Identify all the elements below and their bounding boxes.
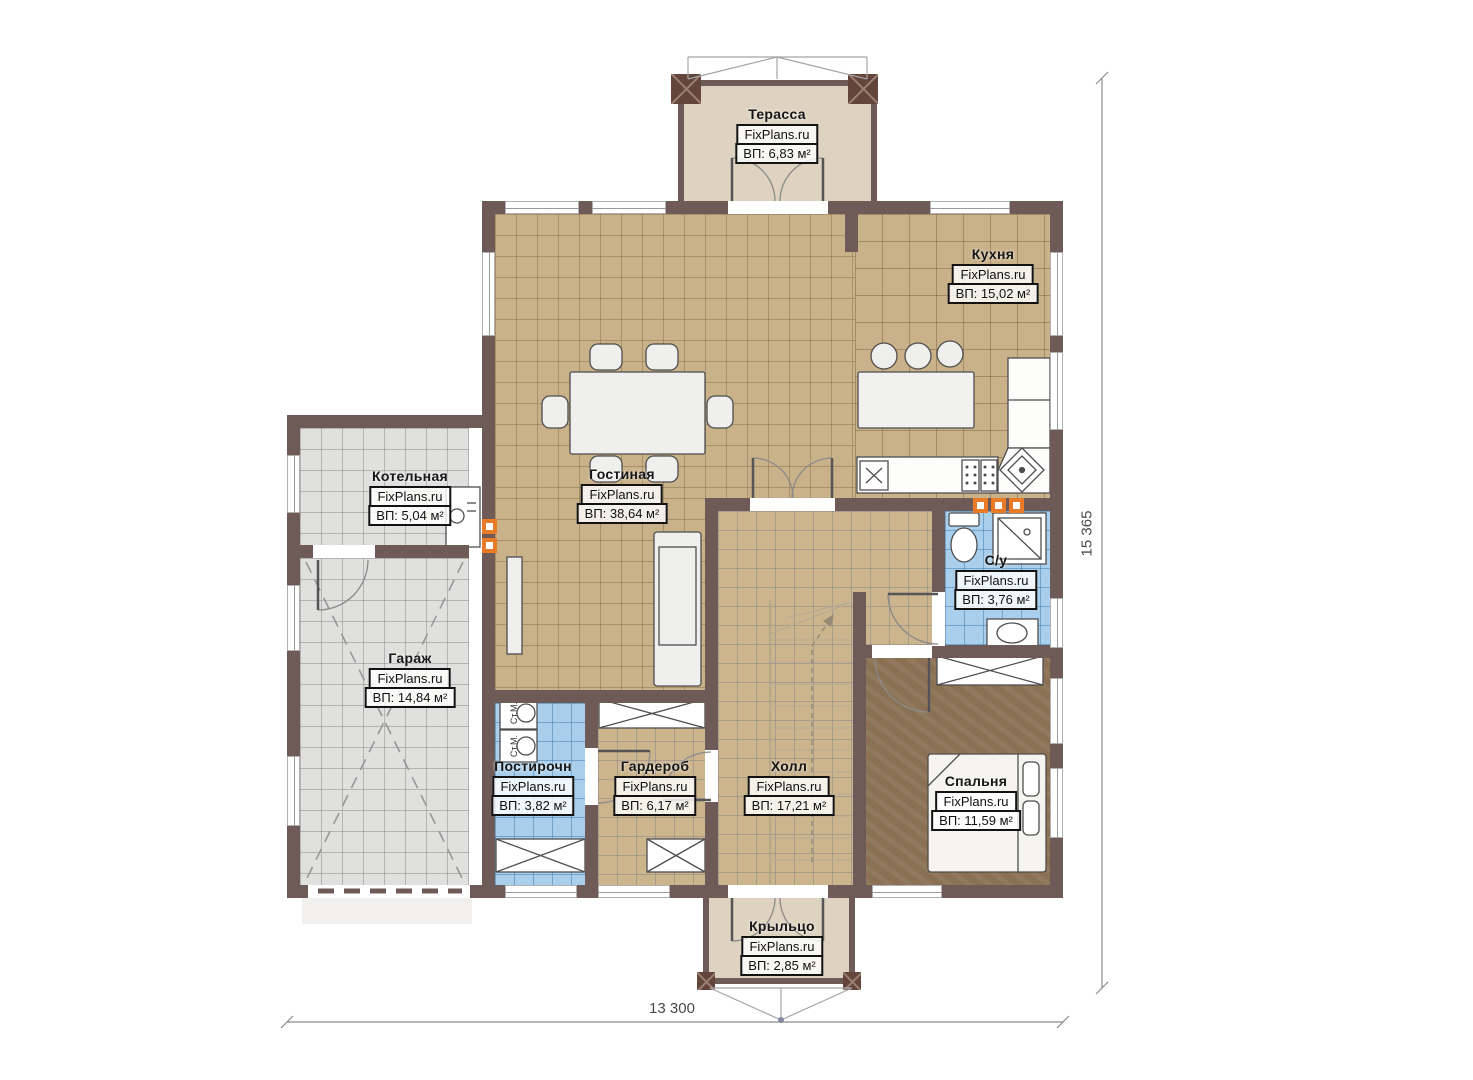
room-watermark: FixPlans.ru: [955, 570, 1037, 591]
bedroom-floor: [866, 658, 1050, 885]
room-area: ВП: 5,04 м²: [368, 505, 451, 526]
garage-floor: [300, 558, 469, 885]
washing-machine-label: Ст.М.: [509, 697, 519, 729]
porch-pillar: [843, 972, 861, 990]
room-name: Гостиная: [589, 466, 655, 482]
room-label-boiler: Котельная FixPlans.ru ВП: 5,04 м²: [368, 468, 451, 526]
window: [1050, 598, 1063, 648]
window: [1050, 252, 1063, 336]
wardrobe-door-opening: [705, 750, 718, 802]
room-watermark: FixPlans.ru: [614, 776, 696, 797]
floor-plan-canvas: Терасса FixPlans.ru ВП: 6,83 м² Кухня Fi…: [0, 0, 1473, 1080]
room-watermark: FixPlans.ru: [492, 776, 574, 797]
room-watermark: FixPlans.ru: [952, 264, 1034, 285]
window: [287, 585, 300, 651]
room-area: ВП: 3,76 м²: [954, 589, 1037, 610]
terrace-pillar: [671, 74, 701, 104]
dimension-width: 13 300: [622, 1000, 722, 1017]
garage-gate-opening: [308, 885, 470, 898]
room-label-terrace: Терасса FixPlans.ru ВП: 6,83 м²: [735, 106, 818, 164]
room-label-living: Гостиная FixPlans.ru ВП: 38,64 м²: [577, 466, 668, 524]
radiator: [991, 498, 1006, 513]
radiator: [482, 519, 497, 534]
room-name: С/у: [985, 552, 1008, 568]
room-label-porch: Крыльцо FixPlans.ru ВП: 2,85 м²: [740, 918, 823, 976]
room-name: Кухня: [972, 246, 1014, 262]
terrace-door-opening: [728, 201, 828, 214]
room-name: Котельная: [372, 468, 448, 484]
wall-stairs-bedroom: [853, 592, 866, 885]
porch-wall-bottom: [703, 978, 855, 984]
room-area: ВП: 38,64 м²: [577, 503, 668, 524]
window: [287, 756, 300, 826]
bedroom-door-opening: [872, 645, 932, 658]
radiator: [482, 538, 497, 553]
room-label-bedroom: Спальня FixPlans.ru ВП: 11,59 м²: [931, 773, 1021, 831]
window: [1050, 768, 1063, 838]
room-watermark: FixPlans.ru: [748, 776, 830, 797]
window: [287, 455, 300, 513]
room-watermark: FixPlans.ru: [581, 484, 663, 505]
room-watermark: FixPlans.ru: [369, 668, 451, 689]
room-area: ВП: 3,82 м²: [491, 795, 574, 816]
radiator: [973, 498, 988, 513]
room-area: ВП: 11,59 м²: [931, 810, 1021, 831]
wall-living-bottom: [495, 690, 718, 703]
room-name: Терасса: [748, 106, 806, 122]
room-name: Крыльцо: [749, 918, 815, 934]
laundry-door-opening: [585, 748, 598, 805]
room-name: Холл: [771, 758, 807, 774]
room-label-kitchen: Кухня FixPlans.ru ВП: 15,02 м²: [948, 246, 1039, 304]
room-watermark: FixPlans.ru: [369, 486, 451, 507]
roof-truss-top: [688, 57, 867, 79]
window: [1050, 352, 1063, 430]
room-watermark: FixPlans.ru: [741, 936, 823, 957]
room-area: ВП: 6,83 м²: [735, 143, 818, 164]
room-area: ВП: 15,02 м²: [948, 283, 1039, 304]
radiator: [1009, 498, 1024, 513]
room-name: Постирочн: [494, 758, 572, 774]
window: [1050, 678, 1063, 744]
window: [505, 201, 579, 214]
terrace-pillar: [848, 74, 878, 104]
room-label-laundry: Постирочн FixPlans.ru ВП: 3,82 м²: [491, 758, 574, 816]
room-area: ВП: 17,21 м²: [744, 795, 835, 816]
room-name: Гараж: [388, 650, 431, 666]
wall-wing-top: [287, 415, 482, 428]
living-room-floor-lower: [495, 498, 705, 690]
window: [598, 885, 670, 898]
boiler-garage-door-opening: [313, 545, 375, 558]
room-area: ВП: 14,84 м²: [365, 687, 456, 708]
wall-kitchen-stub: [845, 214, 858, 252]
room-label-garage: Гараж FixPlans.ru ВП: 14,84 м²: [365, 650, 456, 708]
roof-truss-bottom: [710, 988, 852, 1023]
window: [872, 885, 942, 898]
room-watermark: FixPlans.ru: [935, 791, 1017, 812]
window: [482, 252, 495, 336]
window: [592, 201, 666, 214]
room-label-hall: Холл FixPlans.ru ВП: 17,21 м²: [744, 758, 835, 816]
room-watermark: FixPlans.ru: [736, 124, 818, 145]
porch-pillar: [697, 972, 715, 990]
porch-door-opening: [728, 885, 828, 898]
room-label-bathroom: С/у FixPlans.ru ВП: 3,76 м²: [954, 552, 1037, 610]
garage-driveway-apron: [302, 898, 472, 924]
window: [930, 201, 1010, 214]
room-area: ВП: 6,17 м²: [613, 795, 696, 816]
bathroom-door-opening: [932, 592, 945, 646]
window: [505, 885, 577, 898]
room-name: Гардероб: [621, 758, 690, 774]
hall-door-opening: [750, 498, 835, 511]
room-label-wardrobe: Гардероб FixPlans.ru ВП: 6,17 м²: [613, 758, 696, 816]
dimension-height: 15 365: [1079, 494, 1096, 574]
room-name: Спальня: [945, 773, 1008, 789]
room-area: ВП: 2,85 м²: [740, 955, 823, 976]
